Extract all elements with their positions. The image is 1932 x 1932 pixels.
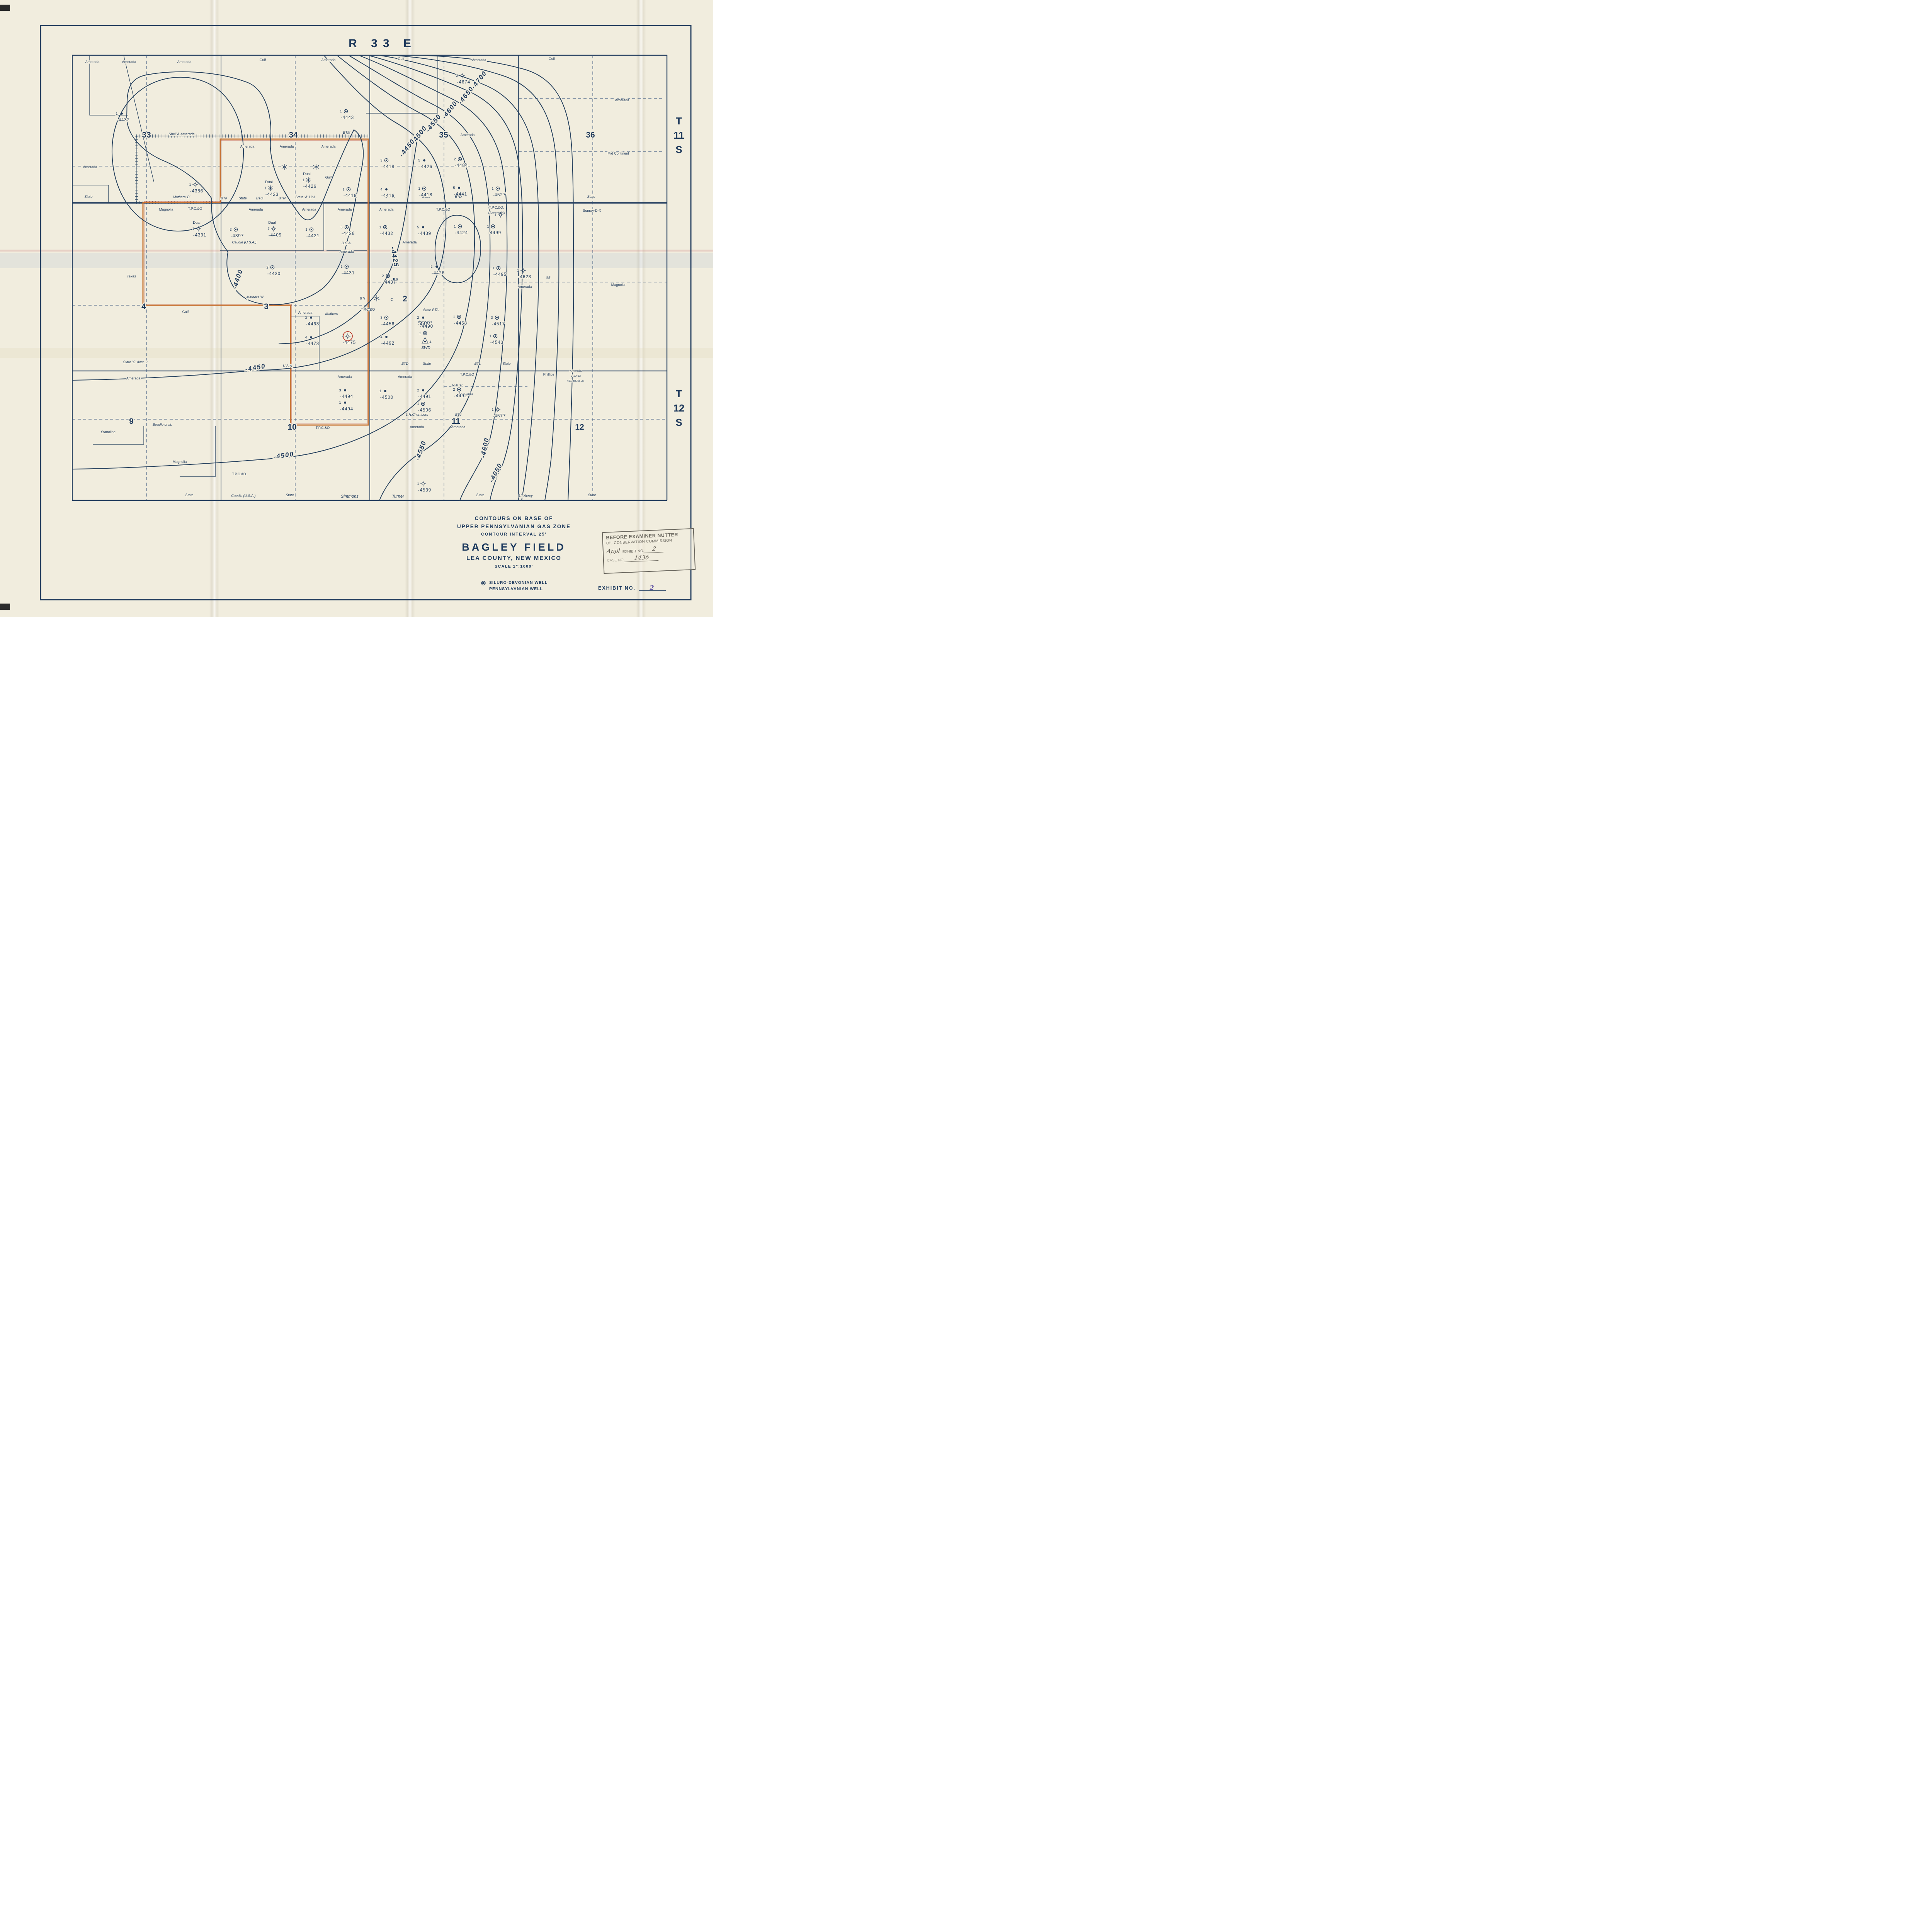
well-depth-value: -4391 [193,233,206,238]
well-marker: 1-4527 [492,187,506,197]
well-number: 3 [380,158,382,162]
lease-label: State 'A' Unit [295,195,315,199]
siluro-devonian-well-icon [459,158,461,160]
well-marker: 5-4441 [453,186,467,197]
pennsylvanian-well-icon [422,316,424,319]
well-marker: 4-4492 [380,335,395,346]
well-number: 1 [379,389,381,393]
well-depth-value: -4418 [419,193,432,197]
pennsylvanian-well-icon [393,278,395,280]
lease-label: T.P.C.&O [436,207,450,211]
well-depth-value: -4441 [454,192,467,197]
contour-line [127,72,363,305]
well-depth-value: -4426 [432,271,445,276]
well-depth-value: -4499 [488,231,501,235]
lease-label: C [391,298,393,301]
well-number: 1 [264,186,266,190]
well-number: 4 [380,187,382,191]
lease-label: State 'C' Acct. 2 [123,360,147,364]
lease-label: Caudle (U.S.A.) [231,494,255,498]
well-number: 3 [491,316,493,320]
lease-label: Amerada [298,311,313,315]
dual-well-icon [269,189,270,190]
well-marker: 1-4500 [379,389,393,400]
lease-label: Amerada [461,133,475,137]
well-dual-tag: Dual [303,172,311,176]
dual-well-icon [306,181,308,182]
well-number: 5 [418,158,420,162]
well-number: 1 [305,228,307,231]
township-label: S [675,417,682,428]
pennsylvanian-well-icon [121,112,123,115]
plugged-well-marks [282,164,379,301]
dry-hole-icon [272,228,275,230]
township-label: T [676,388,682,400]
well-number: 1 [417,402,419,406]
lease-labels: AmeradaAmeradaAmeradaGulfAmeradaGulfAmer… [83,57,629,499]
well-marker: 1-44904SWD [419,324,433,350]
well-depth-value: -4490 [420,324,433,329]
well-depth-value: -4484 [455,163,468,168]
lease-label: (Amerada) [488,211,505,215]
well-depth-value: -4492 [381,341,395,346]
siluro-devonian-well-icon [495,335,496,337]
lease-label: Magnolia [159,207,173,211]
well-number: 5 [340,225,342,229]
unit-boundary-orange [143,139,368,425]
lease-label: Phillips [543,372,554,376]
well-depth-value: -4458 [454,321,467,326]
lease-label: Amerada [379,207,394,211]
lease-label: J.T.Acrey [518,494,533,498]
well-depth-value: -4432 [380,231,393,236]
well-number: 1 [489,334,491,338]
lease-label: Amerada [321,58,336,62]
lease-label: BTJ [455,413,462,417]
well-depth-value: -4674 [457,80,470,85]
siluro-devonian-well-icon [496,317,498,318]
township-label: 12 [673,402,685,414]
well-depth-value: -4492 [454,394,467,398]
well-number: 1 [494,213,496,217]
stamp-exhibit-value: 2 [643,545,665,553]
well-number: 3 [305,316,307,320]
lease-label: Mathers [325,312,338,316]
pennsylvanian-well-icon [423,159,425,162]
well-depth-value: -4421 [306,234,320,238]
well-number: 1 [340,265,342,269]
lease-label: Amerada [302,207,316,211]
well-number: 5 [417,225,419,229]
siluro-devonian-well-icon [348,189,349,190]
section-number: 3 [264,302,269,311]
dual-well-icon [271,186,272,187]
well-marker: 2-4430 [266,265,281,276]
lease-label: State [238,196,247,200]
well-number: 1 [302,178,304,182]
well-marker: 1-4432 [379,225,393,236]
well-depth-value: -4577 [493,414,506,418]
well-marker: 1Dual-4426 [302,172,316,189]
well-number: 1 [339,401,341,405]
well-depth-value: -4418 [381,165,395,169]
pennsylvanian-well-icon [385,188,388,190]
siluro-devonian-well-icon [235,229,236,230]
well-marker: 3-4517 [491,316,505,327]
well-depth-value: -4527 [493,193,506,197]
well-number: 2 [382,274,384,278]
well-number: 4 [429,340,431,344]
dual-well-icon [306,178,308,179]
well-marker: 3-4456 [380,316,395,327]
well-number: 1 [492,266,494,270]
map-border [41,26,691,600]
section-number: 33 [142,131,151,139]
stamp-case-label: CASE NO. [607,558,625,563]
map-scale: SCALE 1":1000' [413,564,614,569]
well-depth-value: -4423 [265,192,279,197]
lease-label: T.P.C.&O [361,308,375,311]
title-line-1: CONTOURS ON BASE OF [413,515,614,521]
contour-line [379,55,539,500]
contour-line [392,55,559,500]
well-depth-value: -4543 [490,340,503,345]
well-depth-value: -4426 [303,184,316,189]
discovery-well-red-circle [343,332,352,341]
dual-well-icon [271,189,272,190]
lease-label: BTD [401,362,409,366]
well-depth-value: -4517 [492,322,505,327]
pennsylvanian-well-icon [422,389,424,391]
well-number: 2 [417,316,419,320]
stamp-case-value: 1436 [624,553,660,562]
exhibit-number-line: EXHIBIT NO. 2 [598,585,666,591]
contour-lines [72,55,573,500]
lease-label: State [587,195,595,199]
pennsylvanian-well-icon [384,390,386,392]
lease-label: Amerada [280,145,294,148]
lease-label: Amerada [338,375,352,379]
well-depth-value: -4494 [340,395,353,399]
well-number: 2 [456,74,458,78]
lease-label: BTM [343,131,351,134]
swd-label: SWD [421,346,430,350]
well-depth-value: -4473 [306,342,319,346]
contour-label: -4650 [488,462,504,483]
township-label: 11 [673,129,684,141]
lease-label: T.P.C.&O. [232,472,247,476]
well-number: 2 [417,388,419,392]
township-labels: T11ST12S [673,115,685,428]
stamp-handwriting: Appl [606,547,621,555]
legend-item-pennsylvanian: PENNSYLVANIAN WELL [481,587,548,591]
siluro-devonian-well-icon [311,229,312,230]
lease-label: Turner [392,494,405,499]
well-depth-value: -4432 [117,118,130,122]
lease-label: BTO [256,196,263,200]
lease-label: Mathers 'A' [247,295,264,299]
pennsylvanian-well-icon [310,336,312,338]
lease-label: T.P.C.&O. [489,206,504,209]
well-marker: 3-4463 [305,316,319,327]
legend-item-siluro-devonian: SILURO-DEVONIAN WELL [481,580,548,585]
map-sheet: AmeradaAmeradaAmeradaGulfAmeradaGulfAmer… [0,0,713,617]
well-marker: 1-4432 [116,112,130,122]
exhibit-value: 2 [639,585,666,591]
contour-line [72,55,474,469]
pennsylvanian-well-icon [422,226,424,228]
well-marker: 1Dual-4423 [264,180,279,197]
well-marker: 3-4494 [339,388,353,399]
range-label: R 33 E [349,37,417,50]
pennsylvanian-well-icon [458,187,460,189]
well-number: 2 [430,265,432,269]
well-number: 1 [418,187,420,190]
siluro-devonian-well-icon [459,226,461,227]
swd-triangle-icon [424,341,426,342]
dual-well-icon [270,187,271,189]
well-depth-value: -4506 [418,408,431,413]
lease-label: Amerada [122,60,136,64]
well-number: 1 [419,331,421,335]
lease-label: '65' [546,276,551,280]
dry-hole-icon [497,408,499,411]
well-depth-value: -4623 [518,275,531,279]
lease-label: Amerada [338,207,352,211]
lease-label: Amerada [321,145,336,148]
lease-label: Amerada [403,240,417,244]
lease-label: Magnolia [611,283,626,287]
well-depth-value: -4495 [493,272,507,277]
dry-hole-icon [194,184,196,186]
well-number: 3 [339,388,341,392]
township-label: S [675,144,682,155]
lease-label: Amerada [615,98,629,102]
well-number: 1 [116,112,117,116]
lease-label: 3-10-53 [571,374,581,378]
well-marker: 5-4426 [340,225,355,236]
well-number: 1 [379,225,381,229]
map-legend: SILURO-DEVONIAN WELL PENNSYLVANIAN WELL [481,580,548,593]
dual-well-icon [309,178,310,179]
well-marker: 1-4418 [418,187,432,197]
lease-label: State [476,493,484,497]
lease-label: Amerada [126,376,141,380]
lease-label: Gulf [260,58,266,62]
pennsylvanian-well-icon [344,389,346,391]
well-marker: 1-4431 [340,265,355,276]
well-marker: 2-4484 [454,157,468,168]
siluro-devonian-well-icon [386,317,387,318]
well-depth-value: -4409 [269,233,282,238]
well-dual-tag: Dual [193,221,201,225]
well-depth-value: -4439 [418,231,431,236]
lease-label: Mid Continent [607,151,629,155]
well-marker: 2-4475 [342,332,356,345]
lease-label: N M 'B' [452,383,463,387]
exhibit-label: EXHIBIT NO. [598,585,636,591]
well-marker: 1-4499 [487,224,501,235]
well-depth-value: -4416 [381,194,395,198]
contour-interval: CONTOUR INTERVAL 25' [413,532,614,537]
contour-label: -4450 [245,362,266,373]
contour-line [112,77,243,231]
pennsylvanian-well-icon [344,401,346,404]
well-number: 4 [380,335,382,339]
county-name: LEA COUNTY, NEW MEXICO [413,555,614,561]
well-marker: 2-4397 [230,228,244,238]
lease-label: T.P.C.&O [460,372,474,376]
lease-label: Gulf [325,175,332,179]
well-number: 6 [396,277,398,281]
lease-label: BTK [221,196,228,200]
siluro-devonian-well-icon [384,226,386,228]
lease-label: T.P.C.&O [316,426,330,430]
lease-label: Gulf [549,57,555,61]
lease-label: Amerada [340,250,354,253]
contour-label: -4650 [457,85,475,106]
siluro-devonian-well-icon [458,316,460,318]
well-number: 1 [492,187,493,190]
siluro-devonian-well-icon [458,389,460,390]
well-depth-value: -4437 [383,280,396,285]
lease-label: Magnolia [173,460,187,464]
township-label: T [676,115,682,127]
title-block: CONTOURS ON BASE OF UPPER PENNSYLVANIAN … [413,515,614,569]
lease-label: BTL [474,362,481,366]
pennsylvanian-well-icon [385,336,388,338]
contour-line [368,55,522,500]
siluro-devonian-well-icon [422,403,424,405]
title-line-2: UPPER PENNSYLVANIAN GAS ZONE [413,524,614,529]
well-marker: 1-4494 [339,401,353,412]
siluro-devonian-well-icon [345,111,347,112]
dual-well-icon [308,179,309,181]
dry-hole-icon [422,483,424,485]
lease-label: State [84,195,92,199]
contour-label: -4400 [231,268,244,290]
lease-label: Amerada [472,58,486,62]
well-marker: 5-4426 [418,158,432,169]
well-number: 1 [342,187,344,191]
well-number: 2 [453,388,455,391]
lease-label: Stanolind [101,430,116,434]
contour-label: -4450 [398,138,417,158]
lease-label: Amerada [398,375,412,379]
section-number: 9 [129,417,134,426]
dual-well-icon [269,186,270,187]
lease-label: State [502,362,510,366]
well-dual-tag: Dual [268,221,276,225]
stamp-exhibit-label: EXHIBIT NO. [622,549,645,554]
lease-label: State BTA [423,308,439,312]
lease-label: U.S.A. [342,241,352,245]
lease-label: BTI [360,296,366,300]
siluro-devonian-well-icon [498,267,499,269]
well-marker: 2-44376 [382,274,398,285]
lease-label: State [286,493,294,497]
well-marker: 4-4416 [380,187,395,198]
well-marker: 1-4424 [454,224,468,235]
well-depth-value: -4463 [306,322,319,327]
well-depth-value: -4475 [343,340,356,345]
siluro-devonian-well-icon [423,188,425,189]
well-marker: 1-4416 [342,187,357,198]
pennsylvanian-well-icon [310,316,312,319]
field-name: BAGLEY FIELD [413,541,614,553]
lease-label: 481.48 Ac.Ls. [567,379,584,383]
well-marker: 1-4495 [492,266,507,277]
well-depth-value: -4539 [418,488,431,493]
legend-label: SILURO-DEVONIAN WELL [489,580,548,585]
well-marker: 1-4577 [492,407,506,418]
well-depth-value: -4386 [190,189,203,194]
lease-label: Beadle et al. [153,423,172,427]
well-depth-value: -4424 [455,231,468,235]
section-number: 36 [586,131,595,139]
dual-well-icon [309,181,310,182]
contour-label: -4550 [414,440,428,462]
lease-label: Amerada [570,369,582,372]
section-number: 12 [575,423,584,432]
lease-label: U.S.A. [283,364,293,368]
siluro-devonian-well-icon [272,267,273,268]
well-depth-value: -4431 [342,271,355,276]
well-marker: 1-4386 [189,182,203,194]
well-number: 7 [267,227,269,231]
well-number: 2 [230,228,231,231]
lease-label: Amerada [249,207,263,211]
section-number: 10 [287,423,296,432]
legend-label: PENNSYLVANIAN WELL [489,587,543,591]
well-number: 1 [487,224,489,228]
lease-label: Simmons [341,494,359,499]
well-depth-value: -4491 [418,395,431,399]
well-depth-value: -4500 [380,395,393,400]
lease-label: Amerada [518,285,532,289]
contour-label: -4600 [479,437,491,459]
siluro-devonian-well-icon [424,332,426,334]
well-dual-tag: Dual [265,180,273,184]
lease-label: BTN [279,196,286,200]
siluro-devonian-well-icon [346,226,347,228]
examiner-stamp: BEFORE EXAMINER NUTTER OIL CONSERVATION … [602,528,696,574]
dry-hole-icon [347,335,349,337]
well-number: 1 [192,227,194,231]
well-number: 1 [517,269,519,272]
well-number: 1 [454,224,456,228]
well-depth-value: -4416 [344,194,357,198]
well-marker: 1-4506 [417,402,431,413]
lease-label: Gulf [182,310,189,314]
well-depth-value: -4494 [340,407,353,412]
well-marker: 7Dual-4409 [267,221,282,238]
well-depth-value: -4430 [267,272,281,276]
unit-boundary-red [144,140,367,424]
contour-label: -4425 [389,246,400,268]
section-number: 2 [403,294,407,303]
well-number: 1 [189,183,191,187]
contour-labels: -4700-4650-4600-4550-4500-4450-4400-4425… [231,70,504,484]
siluro-devonian-well-icon [492,226,494,227]
well-number: 1 [453,315,455,319]
well-marker: 5-4439 [417,225,431,236]
well-depth-value: -4426 [419,165,432,169]
lease-label: Texas [127,274,136,278]
lease-label: Amerada [240,145,255,148]
well-depth-value: -4426 [342,231,355,236]
lease-label: Amerada [83,165,97,169]
